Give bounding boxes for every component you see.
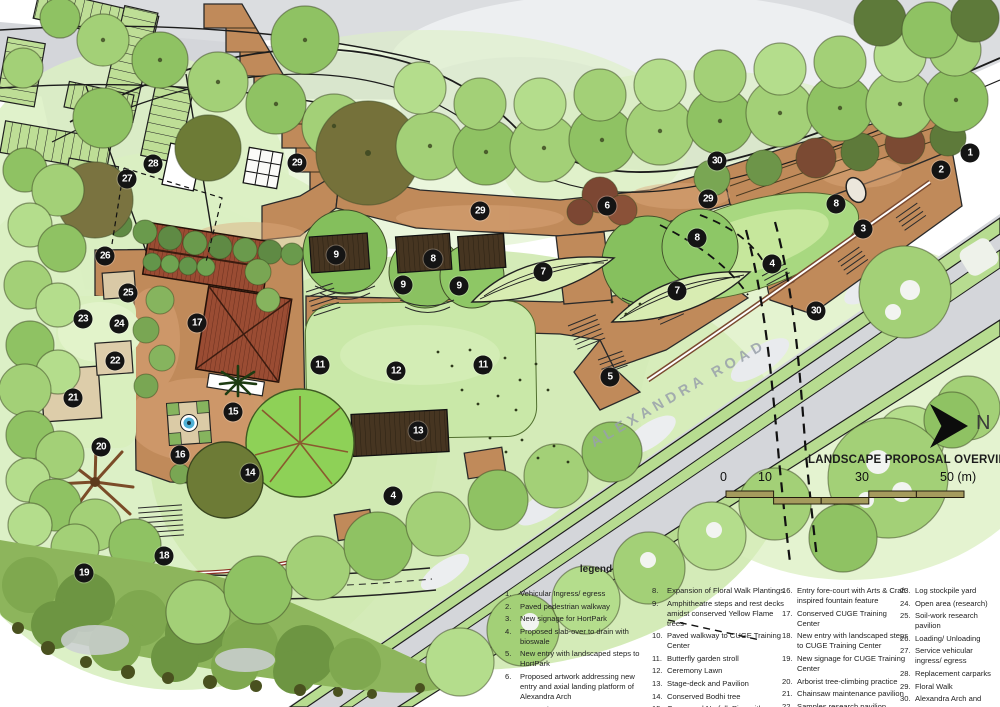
artwork-lattice [243, 147, 283, 188]
plan-marker-29: 29 [699, 190, 718, 209]
plan-marker-15: 15 [224, 403, 243, 422]
plan-marker-25: 25 [119, 284, 138, 303]
plan-marker-30: 30 [708, 152, 727, 171]
plan-marker-6: 6 [598, 197, 617, 216]
plan-marker-12: 12 [387, 362, 406, 381]
plan-marker-13: 13 [409, 422, 428, 441]
plan-marker-9: 9 [450, 277, 469, 296]
scale-label-10: 10 [758, 470, 772, 484]
scale-bar: 0 10 30 50 (m) [712, 470, 1000, 514]
page-title: LANDSCAPE PROPOSAL OVERVIEW [808, 454, 994, 466]
plan-marker-7: 7 [668, 282, 687, 301]
plan-marker-11: 11 [474, 356, 493, 375]
plan-marker-26: 26 [96, 247, 115, 266]
plan-marker-1: 1 [961, 144, 980, 163]
plan-marker-24: 24 [110, 315, 129, 334]
plan-marker-4: 4 [384, 487, 403, 506]
plan-marker-16: 16 [171, 446, 190, 465]
plan-marker-29: 29 [288, 154, 307, 173]
plan-marker-11: 11 [311, 356, 330, 375]
site-plan-drawing [0, 0, 1000, 707]
plan-marker-18: 18 [155, 547, 174, 566]
scale-label-50: 50 (m) [940, 470, 976, 484]
landscape-plan-page: 1234456778889991111121314151617181920212… [0, 0, 1000, 707]
plan-marker-22: 22 [106, 352, 125, 371]
plan-marker-27: 27 [118, 170, 137, 189]
plan-marker-5: 5 [601, 368, 620, 387]
plan-marker-2: 2 [932, 161, 951, 180]
north-arrow-icon [930, 404, 968, 448]
north-label: N [976, 412, 990, 435]
scale-label-30: 30 [855, 470, 869, 484]
plan-marker-21: 21 [64, 389, 83, 408]
plan-marker-8: 8 [827, 195, 846, 214]
plan-marker-8: 8 [424, 250, 443, 269]
plan-marker-17: 17 [188, 314, 207, 333]
plan-marker-4: 4 [763, 255, 782, 274]
scale-bar-graphic [725, 490, 967, 506]
plan-marker-29: 29 [471, 202, 490, 221]
plan-marker-19: 19 [75, 564, 94, 583]
plan-marker-8: 8 [688, 229, 707, 248]
plan-marker-9: 9 [327, 246, 346, 265]
north-arrow: N [930, 404, 1000, 452]
plan-marker-23: 23 [74, 310, 93, 329]
plan-marker-14: 14 [241, 464, 260, 483]
scale-label-0: 0 [720, 470, 727, 484]
plan-marker-9: 9 [394, 276, 413, 295]
plan-marker-3: 3 [854, 220, 873, 239]
plan-marker-20: 20 [92, 438, 111, 457]
plan-marker-7: 7 [534, 263, 553, 282]
fountain [167, 401, 212, 446]
plan-marker-30: 30 [807, 302, 826, 321]
plan-marker-28: 28 [144, 155, 163, 174]
